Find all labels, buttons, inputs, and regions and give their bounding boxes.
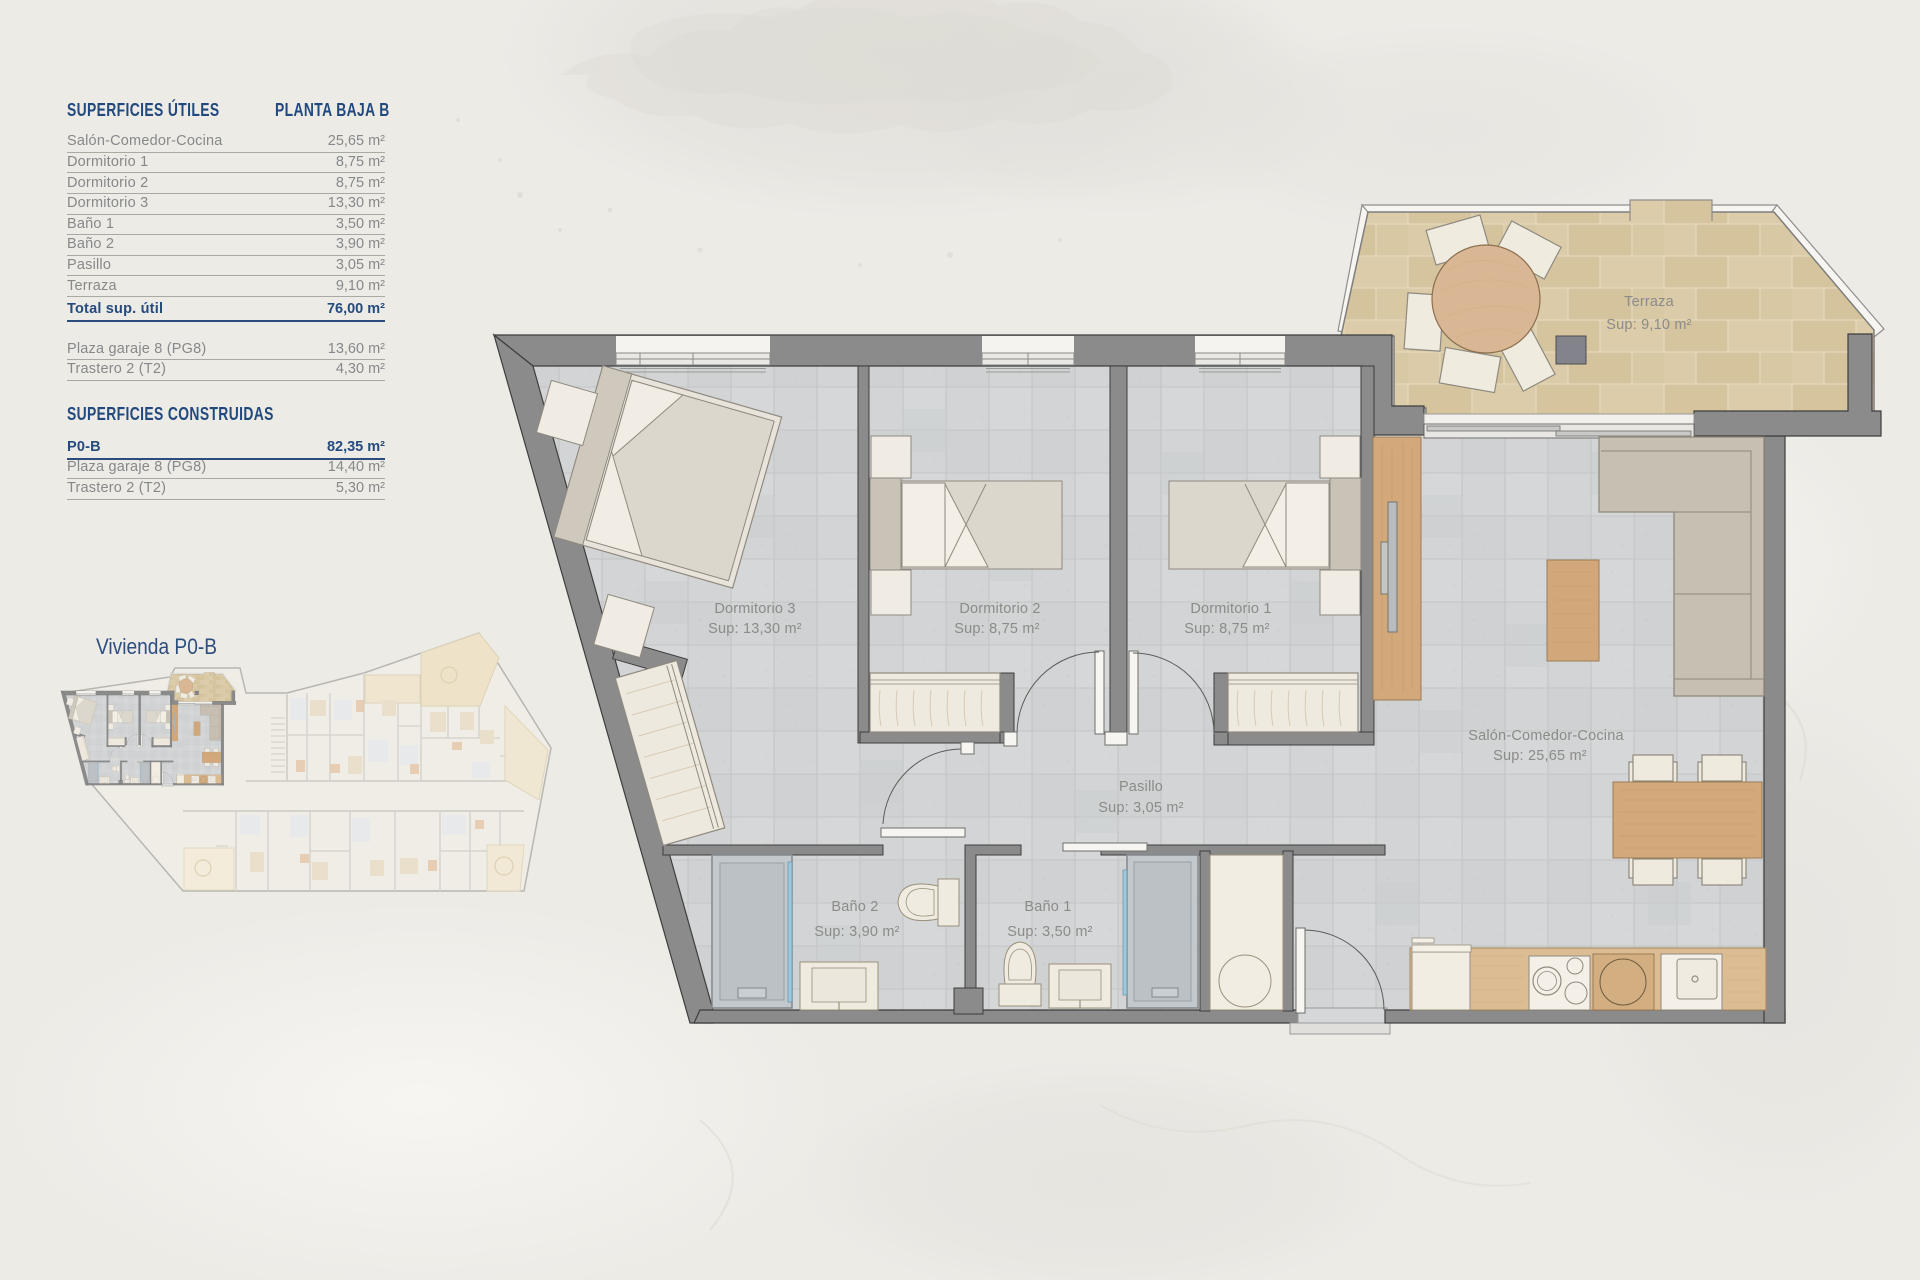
svg-text:Pasillo: Pasillo xyxy=(1119,779,1163,795)
svg-text:Sup: 13,30 m²: Sup: 13,30 m² xyxy=(708,621,802,637)
svg-text:Sup: 25,65 m²: Sup: 25,65 m² xyxy=(1493,748,1587,764)
svg-text:Terraza: Terraza xyxy=(1624,294,1674,310)
svg-text:Sup: 3,90 m²: Sup: 3,90 m² xyxy=(814,924,899,940)
svg-text:Baño 1: Baño 1 xyxy=(1024,899,1071,915)
svg-text:Sup: 3,50 m²: Sup: 3,50 m² xyxy=(1007,924,1092,940)
svg-text:Dormitorio 1: Dormitorio 1 xyxy=(1190,601,1271,617)
svg-text:Sup: 8,75 m²: Sup: 8,75 m² xyxy=(954,621,1039,637)
svg-text:Vivienda P0-B: Vivienda P0-B xyxy=(96,634,217,659)
svg-text:Salón-Comedor-Cocina: Salón-Comedor-Cocina xyxy=(1468,728,1624,744)
svg-text:Dormitorio 2: Dormitorio 2 xyxy=(959,601,1040,617)
svg-text:Sup: 3,05 m²: Sup: 3,05 m² xyxy=(1098,800,1183,816)
svg-text:Sup: 9,10 m²: Sup: 9,10 m² xyxy=(1606,317,1691,333)
svg-text:Dormitorio 3: Dormitorio 3 xyxy=(714,601,795,617)
svg-text:Sup: 8,75 m²: Sup: 8,75 m² xyxy=(1184,621,1269,637)
svg-text:Baño 2: Baño 2 xyxy=(831,899,878,915)
